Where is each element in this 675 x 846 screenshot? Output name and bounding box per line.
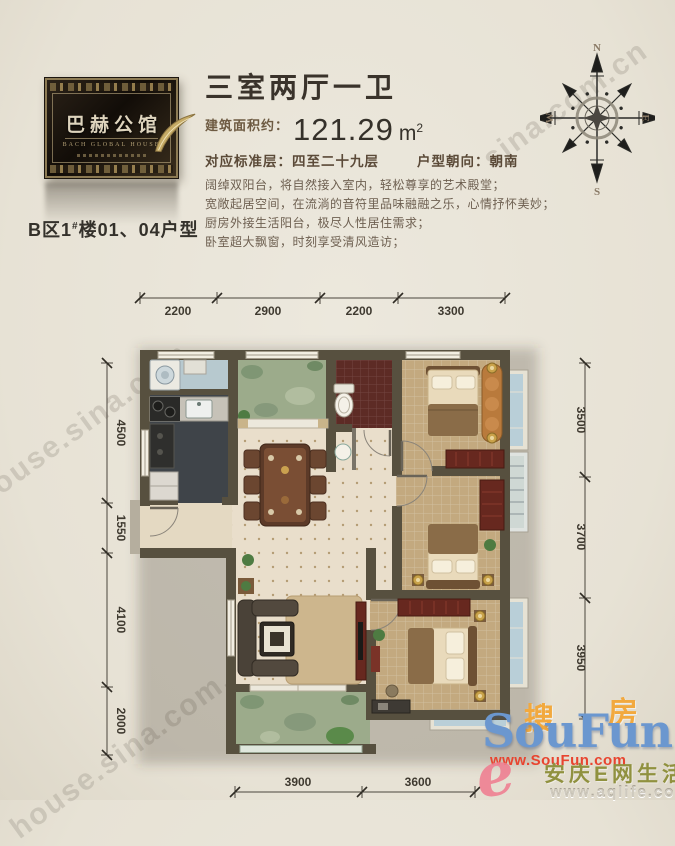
- dim-label: 3300: [438, 304, 465, 318]
- plant: [242, 554, 254, 566]
- dim-label: 3700: [574, 524, 588, 551]
- floor-plan: 2200 2900 2200 3300 4500 1550 4100 2000 …: [0, 0, 675, 800]
- plant: [241, 581, 251, 591]
- wash-basin: [335, 444, 351, 460]
- window-kitchen-west: [142, 430, 149, 476]
- wardrobe: [446, 450, 504, 468]
- dim-label: 2200: [165, 304, 192, 318]
- dim-label: 1550: [114, 515, 128, 542]
- dim-right: 3500 3700 3950: [574, 358, 591, 724]
- sliding-door-south-balcony: [250, 685, 346, 691]
- plant: [373, 629, 385, 641]
- window-living-west: [228, 600, 235, 656]
- desk: [372, 700, 410, 713]
- floorplan-page: { "logo": { "name_cn": "巴赫公馆", "name_en"…: [0, 0, 675, 800]
- room-south-balcony: [232, 688, 370, 748]
- room-entry: [145, 503, 232, 553]
- sill-north-balcony: [238, 419, 328, 428]
- dim-label: 2900: [255, 304, 282, 318]
- dim-label: 2000: [114, 708, 128, 735]
- dim-left: 4500 1550 4100 2000: [101, 358, 128, 760]
- room-north-balcony: [238, 355, 328, 425]
- dim-label: 3900: [285, 775, 312, 789]
- plant: [484, 539, 496, 551]
- dining-set: [244, 444, 326, 526]
- window-service-balcony: [158, 352, 214, 359]
- window-north-balcony: [246, 352, 318, 359]
- tv: [358, 622, 363, 660]
- dim-label: 3950: [574, 645, 588, 672]
- cabinet: [371, 646, 380, 672]
- window-north-bedroom: [406, 352, 460, 359]
- desk-chair: [386, 685, 398, 697]
- toilet-icon: [334, 384, 354, 417]
- dim-label: 3500: [574, 407, 588, 434]
- dim-label: 3600: [405, 775, 432, 789]
- dim-top: 2200 2900 2200 3300: [135, 292, 510, 318]
- wardrobe: [480, 480, 504, 530]
- balcony-rail: [240, 746, 362, 753]
- dim-bottom: 3900 3600: [230, 775, 480, 798]
- dim-label: 2200: [346, 304, 373, 318]
- dim-label: 4100: [114, 607, 128, 634]
- dim-label: 4500: [114, 420, 128, 447]
- entry-porch: [130, 500, 140, 554]
